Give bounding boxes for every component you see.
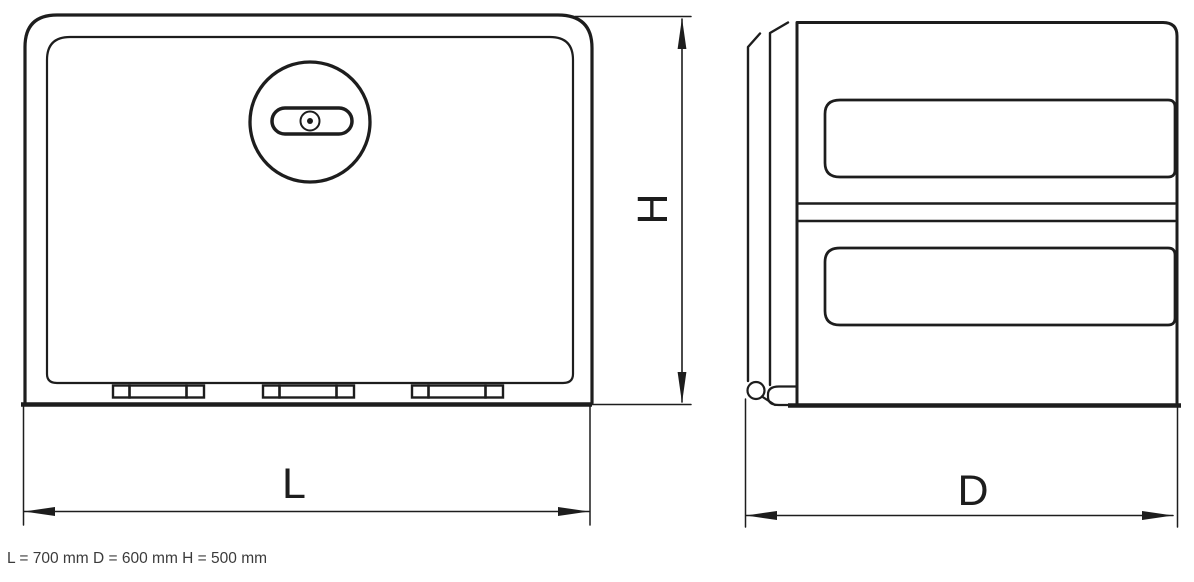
toolbox-drawing-svg: L H D	[0, 0, 1194, 582]
arrowhead-left	[24, 507, 55, 516]
key-pin-dot	[307, 118, 313, 124]
dimensions-caption: L = 700 mm D = 600 mm H = 500 mm	[7, 549, 267, 569]
dimension-L: L	[24, 406, 591, 525]
hinge-segment	[187, 386, 205, 398]
hinge-segment	[280, 386, 337, 398]
arrowhead-right	[1142, 511, 1173, 520]
hinge-segment	[130, 386, 187, 398]
side-view	[748, 23, 1182, 406]
arrowhead-left	[746, 511, 777, 520]
technical-drawing-canvas: L H D L = 700 mm D = 600 mm H = 500 mm	[0, 0, 1194, 582]
front-lid-outline	[47, 37, 573, 383]
side-body-outline	[797, 23, 1177, 406]
depth-label: D	[957, 467, 988, 515]
hinge-segment	[337, 386, 355, 398]
arrowhead-down	[678, 372, 687, 403]
hinge-left	[113, 386, 204, 398]
hinge-segment	[263, 386, 280, 398]
hinge-segment	[486, 386, 504, 398]
lid-front-inner-line	[770, 23, 788, 386]
length-label: L	[282, 460, 306, 508]
lock-cylinder	[250, 62, 370, 182]
hinge-segment	[429, 386, 486, 398]
recessed-panel-bottom	[825, 248, 1175, 325]
height-label: H	[629, 193, 677, 224]
hinge-segment	[113, 386, 130, 398]
hinge-center	[263, 386, 354, 398]
front-view	[21, 15, 592, 405]
hinge-row	[113, 386, 503, 398]
hinge-right	[412, 386, 503, 398]
recessed-panel-top	[825, 100, 1175, 177]
arrowhead-right	[558, 507, 589, 516]
dimension-D: D	[746, 399, 1178, 527]
front-outer-outline	[25, 15, 592, 403]
lid-front-edge-line	[748, 34, 760, 382]
arrowhead-up	[678, 18, 687, 49]
hinge-segment	[412, 386, 429, 398]
